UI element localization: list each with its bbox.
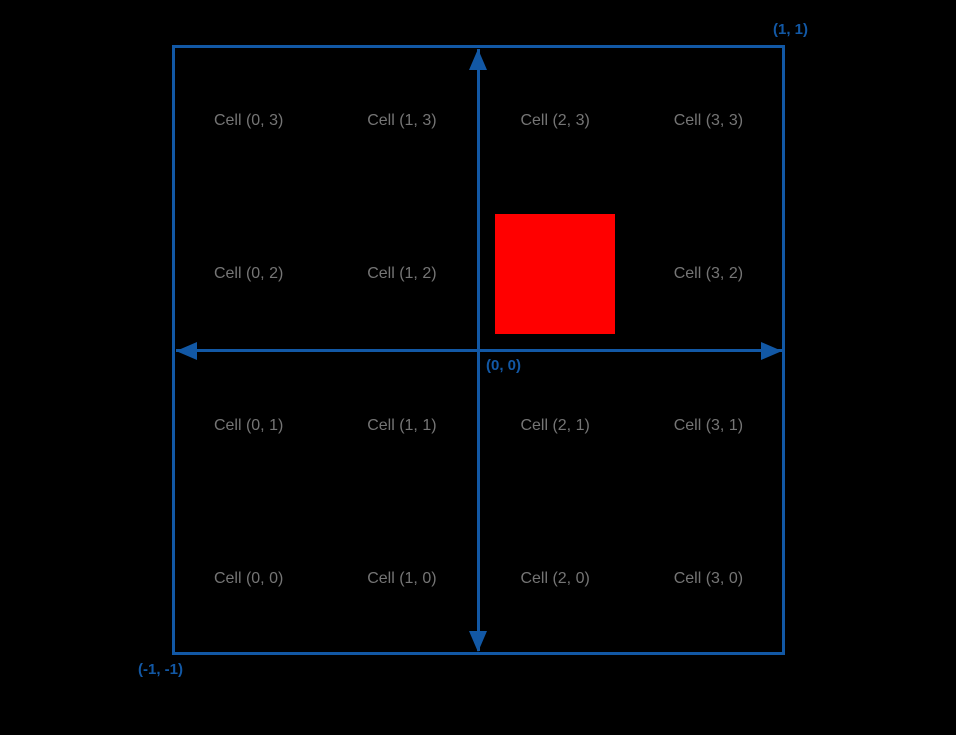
origin-label: (0, 0) (486, 357, 521, 374)
cell-label: Cell (0, 2) (214, 265, 283, 283)
cell-label: Cell (3, 2) (674, 265, 743, 283)
cell-label: Cell (0, 3) (214, 112, 283, 130)
cell-label: Cell (1, 2) (367, 265, 436, 283)
cell-label: Cell (1, 3) (367, 112, 436, 130)
cell-label: Cell (2, 1) (520, 417, 589, 435)
cell-label: Cell (2, 3) (520, 112, 589, 130)
cell-label: Cell (1, 1) (367, 417, 436, 435)
corner-label-top-right: (1, 1) (773, 21, 808, 38)
arrow-down-icon (469, 631, 487, 652)
corner-label-bottom-left: (-1, -1) (138, 661, 183, 678)
cell-label: Cell (3, 3) (674, 112, 743, 130)
arrow-up-icon (469, 49, 487, 70)
cell-label: Cell (2, 0) (520, 570, 589, 588)
y-axis-line (477, 49, 480, 651)
cell-label: Cell (0, 0) (214, 570, 283, 588)
arrow-right-icon (761, 342, 782, 360)
diagram-canvas: (1, 1) (-1, -1) (0, 0) Cell (0, 3)Cell (… (0, 0, 956, 735)
cell-label: Cell (1, 0) (367, 570, 436, 588)
red-square (495, 214, 615, 334)
cell-label: Cell (3, 1) (674, 417, 743, 435)
arrow-left-icon (176, 342, 197, 360)
cell-label: Cell (0, 1) (214, 417, 283, 435)
cell-label: Cell (3, 0) (674, 570, 743, 588)
